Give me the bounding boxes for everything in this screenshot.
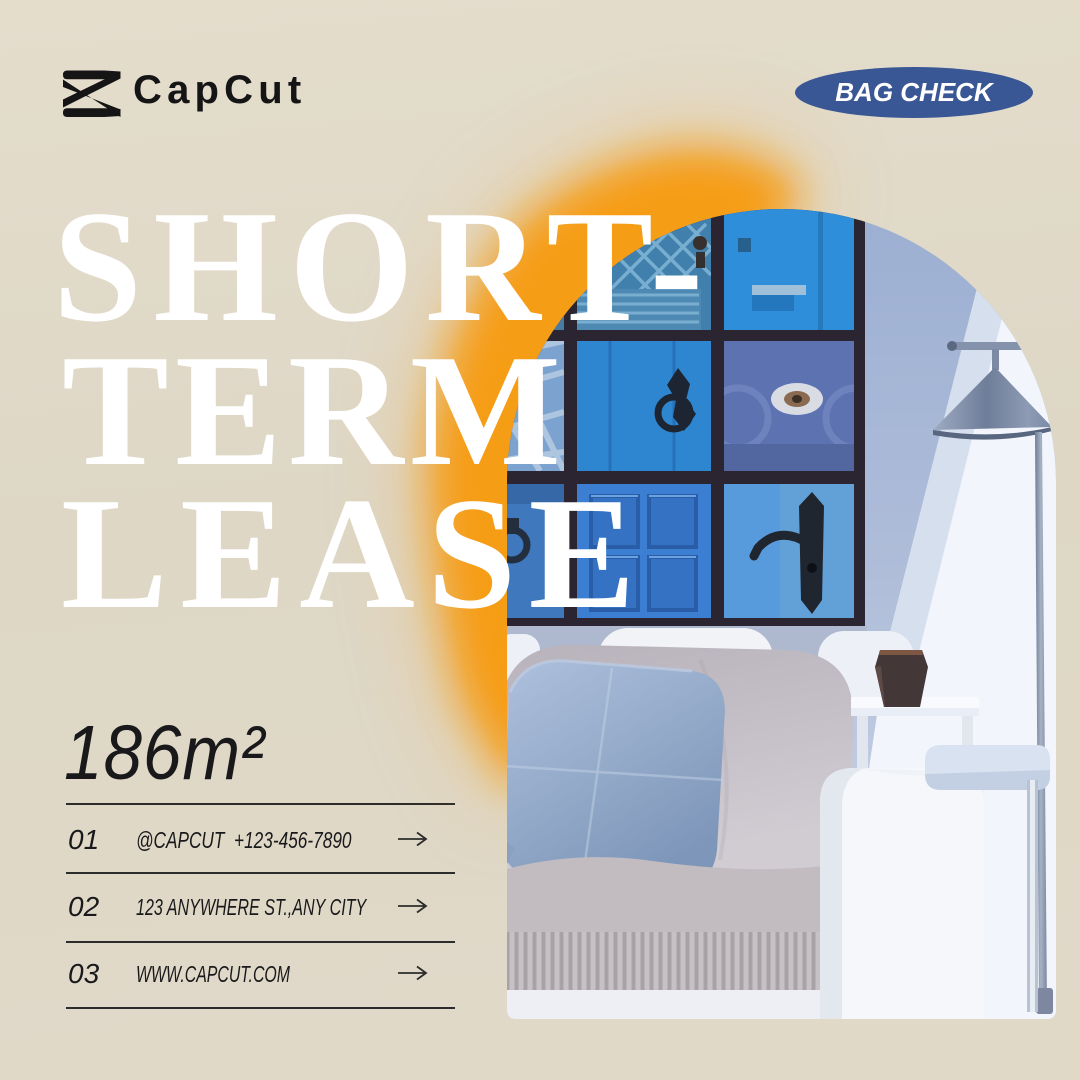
svg-text:CapCut: CapCut xyxy=(133,68,306,112)
